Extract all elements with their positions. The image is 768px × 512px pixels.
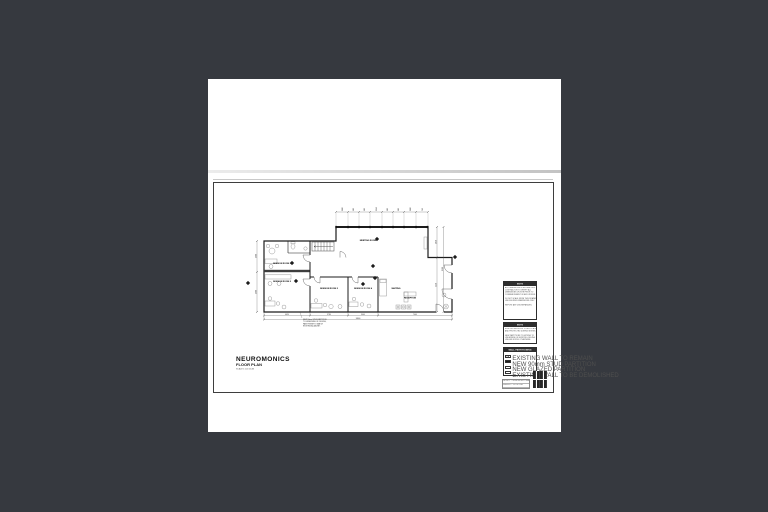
logo-cell — [540, 375, 543, 379]
logo-cell — [537, 371, 540, 375]
plan-note-line: EXISTING ADJACENT. — [303, 325, 321, 328]
stair — [312, 242, 334, 251]
drawing-sheet: 1180 900 900 1240 900 900 1180 760 — [208, 79, 561, 432]
legend-title: WALL PARTITIONING — [508, 349, 531, 351]
room-label-meeting: MEETING ROOM — [360, 240, 377, 242]
company-grid-logo-icon — [533, 371, 547, 388]
dim-label: 2900 — [255, 254, 257, 258]
title-block-text: SCALE 1:100 @ A3 · DWG A-01 · REV A — [503, 388, 529, 389]
plan-note: NEW 90mm STUD PARTITION TO UNDERSIDE OF … — [300, 313, 327, 328]
session-room-2-fixtures — [265, 275, 291, 309]
right-dimension-labels: 3050 5450 8500 — [435, 240, 444, 287]
dim-label: 1180 — [410, 207, 412, 211]
room-label-session-1: SESSION ROOM 1 — [273, 263, 292, 265]
room-label-reception: RECEPTION — [404, 298, 417, 300]
dim-label: 760 — [422, 208, 424, 211]
glazed-partition-symbol-icon — [505, 366, 511, 369]
sheet-edge-gap — [208, 173, 561, 175]
room-label-session-4: SESSION ROOM 4 — [354, 287, 373, 290]
furniture — [265, 237, 448, 309]
logo-cell — [540, 371, 543, 375]
drawing-subtitle: FLOOR PLAN — [236, 363, 290, 368]
session-room-3-fixtures — [311, 299, 342, 309]
note-box-2: NOTE EXISTING SERVICES TO BE LOCATED AND… — [503, 322, 537, 344]
logo-cell — [533, 384, 536, 388]
dim-label: 3050 — [435, 240, 437, 244]
logo-cell — [544, 375, 547, 379]
logo-cell — [544, 384, 547, 388]
logo-cell — [537, 380, 540, 384]
note-line: UNLESS NOTED OTHERWISE. — [505, 339, 535, 341]
note-box-2-header: NOTE — [504, 323, 536, 327]
dim-label: 7000 — [413, 314, 417, 316]
legend-row: EXISTING WALL TO BE DEMOLISHED — [504, 370, 536, 376]
dim-label: 900 — [353, 208, 355, 211]
dim-label: 5450 — [435, 283, 437, 287]
dim-label: 900 — [387, 208, 389, 211]
note-line: AND PROTECTED DURING WORKS. — [505, 330, 535, 332]
room-label-session-2: SESSION ROOM 2 — [273, 281, 292, 283]
demolished-wall-symbol-icon — [505, 371, 511, 374]
dim-label-total: 18800 — [356, 318, 361, 320]
dim-label: 1240 — [376, 207, 378, 211]
dim-label-total: 8500 — [442, 267, 444, 271]
left-dimension-string — [256, 240, 258, 313]
legend-header: WALL PARTITIONING — [504, 348, 536, 352]
note-box-1: NOTE ALL DIMENSIONS IN MILLIMETRES. CONT… — [503, 281, 537, 320]
session-room-4-fixtures — [349, 297, 371, 308]
logo-cell — [544, 380, 547, 384]
top-dimension-string — [335, 211, 429, 225]
existing-wall-symbol-icon — [505, 355, 511, 358]
title-block: PROJECT — NEUROMONICS TENANCY FITOUT DRA… — [502, 379, 530, 389]
floor-plan: 1180 900 900 1240 900 900 1180 760 — [234, 203, 464, 333]
dim-label: 900 — [398, 208, 400, 211]
note-box-1-header: NOTE — [504, 282, 536, 286]
dim-label: 3900 — [255, 290, 257, 294]
drawing-title-group: NEUROMONICS FLOOR PLAN SCALE 1:100 @ A3 — [236, 356, 290, 374]
title-block-row: SCALE 1:100 @ A3 · DWG A-01 · REV A — [503, 388, 529, 389]
dim-label: 1180 — [342, 207, 344, 211]
dim-label: 4620 — [285, 314, 289, 316]
new-stud-partition-symbol-icon — [505, 360, 511, 363]
meeting-room-fixtures — [424, 237, 427, 249]
dim-label: 3400 — [361, 314, 365, 316]
title-block-text: DRAWING — FLOOR PLAN — [503, 384, 529, 386]
logo-cell — [533, 371, 536, 375]
title-block-text: PROJECT — NEUROMONICS TENANCY FITOUT — [503, 380, 529, 382]
note-box-2-title: NOTE — [517, 324, 523, 326]
note-line: USE FIGURED DIMENSIONS ONLY. — [505, 300, 535, 302]
note-line: COMMENCEMENT OF ANY WORKS. — [505, 294, 535, 296]
logo-cell — [540, 380, 543, 384]
frame-top-hairline — [213, 179, 553, 180]
room-labels: SESSION ROOM 1 SESSION ROOM 2 SESSION RO… — [273, 240, 417, 300]
drawing-scale-text: SCALE 1:100 @ A3 — [236, 368, 254, 370]
top-dimension-labels: 1180 900 900 1240 900 900 1180 760 — [342, 207, 424, 211]
logo-cell — [537, 375, 540, 379]
waiting-reception-fixtures — [380, 279, 449, 309]
wall-partitioning-legend: WALL PARTITIONING EXISTING WALL TO REMAI… — [503, 347, 537, 376]
note-line: REPORT ANY DISCREPANCIES. — [505, 304, 535, 306]
note-box-1-title: NOTE — [517, 283, 523, 285]
dim-label: 3780 — [327, 314, 331, 316]
room-label-waiting: WAITING — [392, 287, 401, 290]
logo-cell — [540, 384, 543, 388]
logo-cell — [544, 371, 547, 375]
logo-cell — [533, 380, 536, 384]
logo-cell — [537, 384, 540, 388]
room-label-session-3: SESSION ROOM 3 — [320, 288, 339, 290]
dim-label: 900 — [364, 208, 366, 211]
logo-cell — [533, 375, 536, 379]
